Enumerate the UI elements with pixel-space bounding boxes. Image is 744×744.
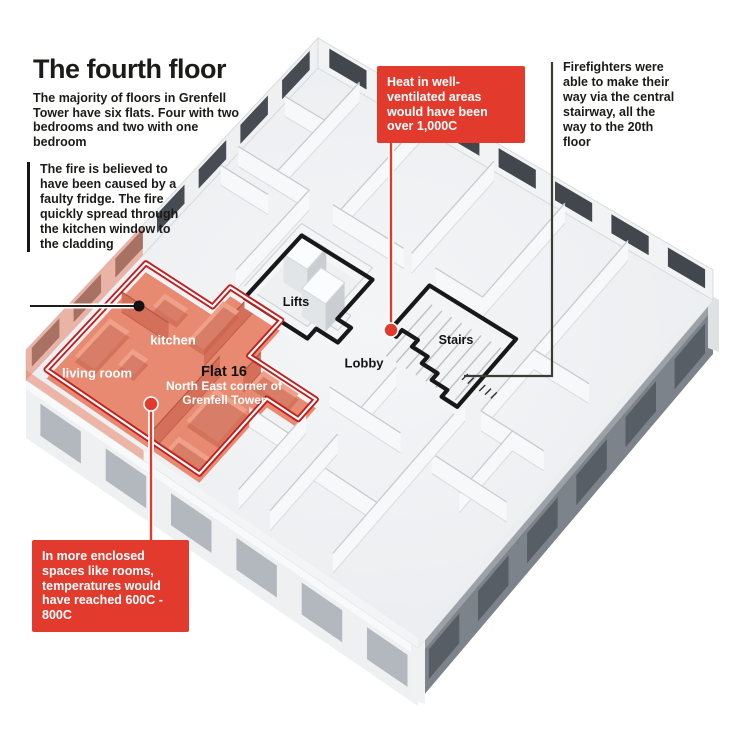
callout-firefighters: Firefighters were able to make their way… xyxy=(563,60,681,150)
page-subtitle: The majority of floors in Grenfell Tower… xyxy=(33,91,241,150)
callout-enclosed-spaces: In more enclosed spaces like rooms, temp… xyxy=(32,540,189,632)
label-living-room: living room xyxy=(62,366,132,381)
callout-heat-text: Heat in well-ventilated areas would have… xyxy=(387,75,488,119)
label-kitchen: kitchen xyxy=(150,333,196,348)
label-lobby: Lobby xyxy=(345,356,384,371)
callout-heat-ventilated: Heat in well-ventilated areas would have… xyxy=(377,66,525,143)
page-title: The fourth floor xyxy=(33,54,226,85)
callout-fridge-fire: The fire is believed to have been caused… xyxy=(27,162,192,252)
label-flat16-line1: North East corner of xyxy=(166,380,282,394)
label-flat16-title: Flat 16 xyxy=(166,364,282,380)
label-flat16-line2: Grenfell Tower xyxy=(166,394,282,408)
infographic-fourth-floor: The fourth floor The majority of floors … xyxy=(0,0,744,744)
label-flat-16: Flat 16 North East corner of Grenfell To… xyxy=(166,364,282,408)
heat-point-marker xyxy=(384,323,398,337)
label-lifts: Lifts xyxy=(283,295,309,309)
label-stairs: Stairs xyxy=(439,333,474,347)
fridge-point-marker xyxy=(134,301,145,312)
enclosed-point-marker xyxy=(144,397,158,411)
callout-heat-bold: over 1,000C xyxy=(387,119,457,133)
